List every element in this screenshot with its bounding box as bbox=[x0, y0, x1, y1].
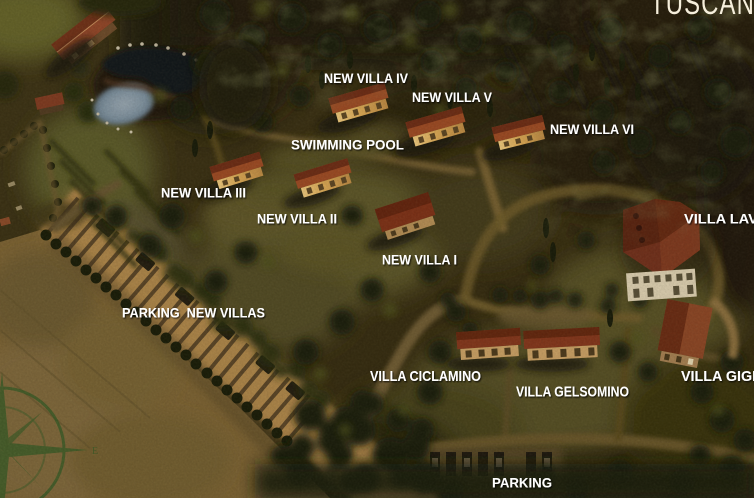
svg-text:NEW VILLA IV: NEW VILLA IV bbox=[324, 71, 409, 86]
svg-text:VILLA CICLAMINO: VILLA CICLAMINO bbox=[370, 369, 481, 385]
svg-text:NEW VILLA V: NEW VILLA V bbox=[412, 90, 493, 105]
svg-text:VILLA GIGLIO: VILLA GIGLIO bbox=[681, 369, 754, 385]
svg-text:VILLA GELSOMINO: VILLA GELSOMINO bbox=[516, 385, 629, 401]
svg-text:NEW VILLA I: NEW VILLA I bbox=[382, 253, 457, 268]
svg-text:PARKING NEW VILLAS: PARKING NEW VILLAS bbox=[122, 306, 265, 321]
svg-text:VILLA LAVANDA: VILLA LAVANDA bbox=[684, 212, 754, 227]
svg-text:TUSCANY: TUSCANY bbox=[650, 0, 754, 21]
svg-text:NEW VILLA III: NEW VILLA III bbox=[161, 186, 246, 201]
svg-text:SWIMMING POOL: SWIMMING POOL bbox=[291, 138, 404, 154]
svg-text:PARKING: PARKING bbox=[492, 476, 552, 491]
svg-text:NEW VILLA VI: NEW VILLA VI bbox=[550, 122, 634, 137]
svg-text:NEW VILLA II: NEW VILLA II bbox=[257, 212, 337, 227]
